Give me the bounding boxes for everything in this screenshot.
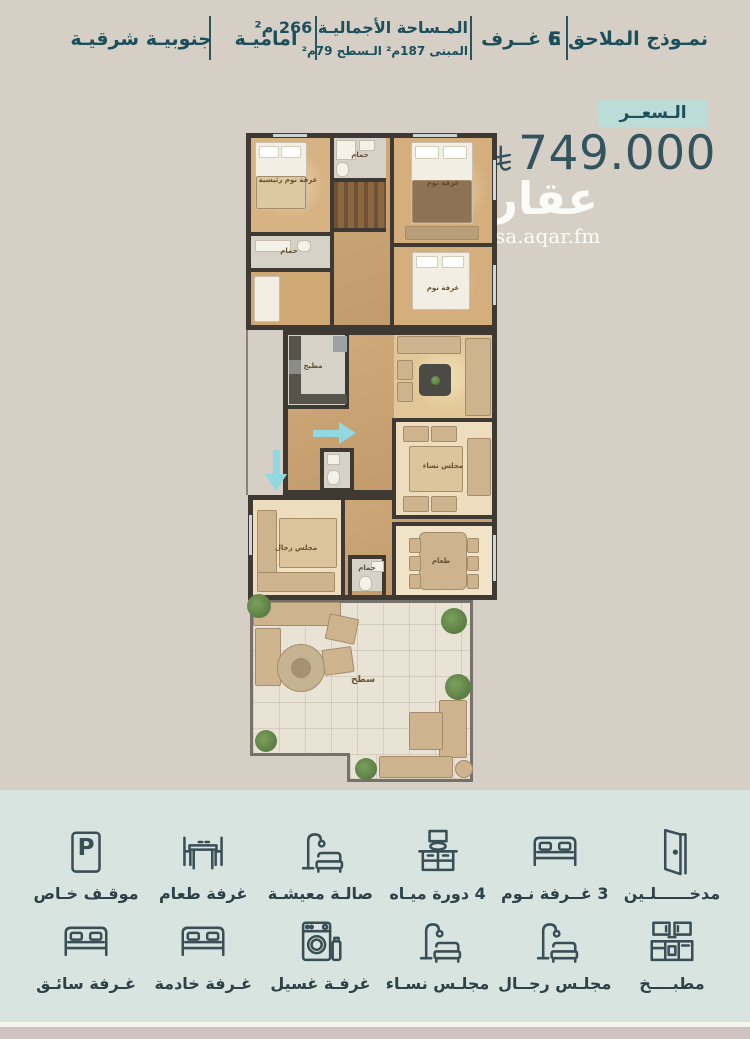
terrace-wall bbox=[250, 753, 350, 756]
aqar-site-url: sa.aqar.fm bbox=[495, 224, 600, 248]
amenity-label: 4 دورة ميـاه bbox=[389, 884, 485, 903]
pillow bbox=[416, 256, 438, 268]
room-label-master: غرفة نوم رئيسية bbox=[259, 176, 318, 184]
amenity-label: صالـة معيشـة bbox=[268, 884, 373, 903]
plant bbox=[247, 594, 271, 618]
room-label-dining: طعام bbox=[432, 557, 450, 565]
toilet bbox=[336, 162, 349, 177]
entrance-arrow-icon bbox=[313, 430, 339, 437]
bed-icon bbox=[176, 916, 230, 970]
outdoor-sofa bbox=[379, 756, 453, 778]
aqar-logo: عقار bbox=[492, 172, 598, 225]
amenity-label: غـرفة سائـق bbox=[36, 974, 136, 993]
listing-image: نمـوذج الملاحق E 6 غــرف المـساحة الأجما… bbox=[0, 0, 750, 1039]
rug bbox=[279, 518, 337, 568]
bed-icon bbox=[59, 916, 113, 970]
amenity-living-room: صالـة معيشـة bbox=[264, 826, 376, 903]
armchair bbox=[403, 426, 429, 442]
sink bbox=[327, 454, 340, 465]
entry-court-wall bbox=[246, 330, 248, 495]
sofa-lamp-icon bbox=[293, 826, 347, 880]
header-rooms-count: 6 غــرف bbox=[478, 28, 564, 50]
amenity-bedrooms: 3 غــرفة نـوم bbox=[499, 826, 611, 903]
plant bbox=[445, 674, 471, 700]
sofa bbox=[467, 438, 491, 496]
wall bbox=[288, 405, 349, 409]
header-divider bbox=[315, 16, 317, 60]
amenity-men-majlis: مجلـس رجــال bbox=[499, 916, 611, 993]
outdoor-chair bbox=[321, 646, 354, 676]
wall bbox=[320, 488, 354, 492]
pillow bbox=[443, 146, 467, 159]
room-label-bath: حمام bbox=[351, 151, 369, 159]
washing-machine-icon bbox=[293, 916, 347, 970]
plant bbox=[355, 758, 377, 780]
amenities-row-2: مطبــــخ مجلـس رجــال مجلـس نسـاء غرفـة … bbox=[30, 916, 728, 993]
window bbox=[493, 265, 496, 305]
sink bbox=[359, 140, 375, 151]
parking-letter: P bbox=[59, 835, 113, 861]
amenity-laundry: غرفـة غسيل bbox=[264, 916, 376, 993]
fridge bbox=[333, 336, 347, 352]
window bbox=[493, 535, 496, 581]
kitchen-icon bbox=[645, 916, 699, 970]
room-label-bath: حمام bbox=[280, 247, 298, 255]
room-label-men-majlis: مجلس رجال bbox=[275, 544, 317, 552]
amenity-driver-room: غـرفة سائـق bbox=[30, 916, 142, 993]
side-table bbox=[455, 760, 473, 778]
header-facade: اماميـة bbox=[223, 28, 309, 50]
toilet bbox=[327, 470, 340, 485]
header-orientation: جنوبيـة شرقيـة bbox=[88, 28, 212, 50]
chair bbox=[409, 538, 421, 553]
plant bbox=[431, 376, 440, 385]
wall bbox=[334, 228, 386, 232]
chair bbox=[409, 556, 421, 571]
door-icon bbox=[645, 826, 699, 880]
sofa-lamp-icon bbox=[528, 916, 582, 970]
amenity-bathrooms: 4 دورة ميـاه bbox=[382, 826, 494, 903]
washbasin-icon bbox=[411, 826, 465, 880]
closet bbox=[334, 182, 386, 228]
amenities-row-1: مدخــــــلـين 3 غــرفة نـوم 4 دورة ميـاه… bbox=[30, 826, 728, 903]
amenity-kitchen: مطبــــخ bbox=[616, 916, 728, 993]
pillow bbox=[281, 146, 301, 158]
sofa bbox=[465, 338, 491, 416]
armchair bbox=[431, 426, 457, 442]
window bbox=[273, 134, 307, 137]
outdoor-sofa bbox=[439, 700, 467, 758]
pillow bbox=[259, 146, 279, 158]
toilet bbox=[359, 576, 372, 591]
room-label-bedroom: غرفة نوم bbox=[427, 179, 460, 187]
chair bbox=[409, 574, 421, 589]
header-divider bbox=[470, 16, 472, 60]
window bbox=[249, 515, 252, 555]
amenity-label: مجلـس رجــال bbox=[498, 974, 611, 993]
wall bbox=[350, 448, 354, 492]
amenities-panel: مدخــــــلـين 3 غــرفة نـوم 4 دورة ميـاه… bbox=[0, 790, 750, 1022]
chair bbox=[467, 556, 479, 571]
parking-icon: P bbox=[59, 826, 113, 880]
outdoor-table bbox=[409, 712, 443, 750]
amenity-maid-room: غـرفة خادمة bbox=[147, 916, 259, 993]
room-label-wc: حمام bbox=[358, 564, 376, 572]
wall bbox=[392, 515, 493, 519]
amenity-label: موقـف خـاص bbox=[33, 884, 138, 903]
entrance-arrow-icon bbox=[273, 450, 280, 474]
sofa bbox=[397, 336, 461, 354]
amenity-women-majlis: مجلـس نسـاء bbox=[382, 916, 494, 993]
amenity-label: غرفـة غسيل bbox=[270, 974, 370, 993]
room-label-bedroom: غرفة نوم bbox=[427, 284, 460, 292]
amenity-parking: P موقـف خـاص bbox=[30, 826, 142, 903]
amenity-label: مجلـس نسـاء bbox=[386, 974, 490, 993]
header-model: نمـوذج الملاحق E bbox=[572, 28, 708, 50]
room-label-terrace: سطح bbox=[351, 675, 375, 685]
amenity-dining-room: غرفة طعام bbox=[147, 826, 259, 903]
room-label-kitchen: مطبخ bbox=[303, 362, 322, 370]
toilet bbox=[297, 240, 311, 252]
plant bbox=[255, 730, 277, 752]
price-badge: الـسعــر bbox=[598, 99, 708, 127]
bed-single bbox=[254, 276, 280, 322]
header-total-area: المـساحة الأجماليـة 266 م² bbox=[322, 18, 468, 37]
window bbox=[413, 134, 457, 137]
armchair bbox=[397, 382, 413, 402]
chair bbox=[467, 574, 479, 589]
outdoor-sofa bbox=[255, 628, 281, 686]
armchair bbox=[397, 360, 413, 380]
header-area-breakdown: المبنى 187م² الـسطح 79م² bbox=[322, 44, 468, 58]
amenity-label: غـرفة خادمة bbox=[154, 974, 251, 993]
kitchen-counter bbox=[289, 394, 347, 404]
floor-plan: غرفة نوم رئيسية حمام غرفة نوم حمام غرفة … bbox=[213, 120, 505, 788]
armchair bbox=[403, 496, 429, 512]
amenity-entrances: مدخــــــلـين bbox=[616, 826, 728, 903]
sofa bbox=[257, 572, 335, 592]
pillow bbox=[442, 256, 464, 268]
window bbox=[493, 160, 496, 200]
pillow bbox=[415, 146, 439, 159]
armchair bbox=[431, 496, 457, 512]
header-divider bbox=[566, 16, 568, 60]
round-table bbox=[291, 658, 311, 678]
amenity-label: غرفة طعام bbox=[159, 884, 247, 903]
plant bbox=[441, 608, 467, 634]
stove bbox=[289, 360, 301, 374]
amenity-label: مطبــــخ bbox=[639, 974, 704, 993]
amenity-label: مدخــــــلـين bbox=[624, 884, 720, 903]
chair bbox=[467, 538, 479, 553]
room-label-women-majlis: مجلس نساء bbox=[423, 462, 464, 470]
entrance-arrow-icon bbox=[265, 474, 287, 491]
amenity-label: 3 غــرفة نـوم bbox=[501, 884, 609, 903]
entrance-arrow-icon bbox=[339, 422, 356, 444]
sofa-lamp-icon bbox=[411, 916, 465, 970]
bed-icon bbox=[528, 826, 582, 880]
rug bbox=[405, 226, 479, 240]
dining-table-icon bbox=[176, 826, 230, 880]
bottom-edge bbox=[0, 1027, 750, 1039]
